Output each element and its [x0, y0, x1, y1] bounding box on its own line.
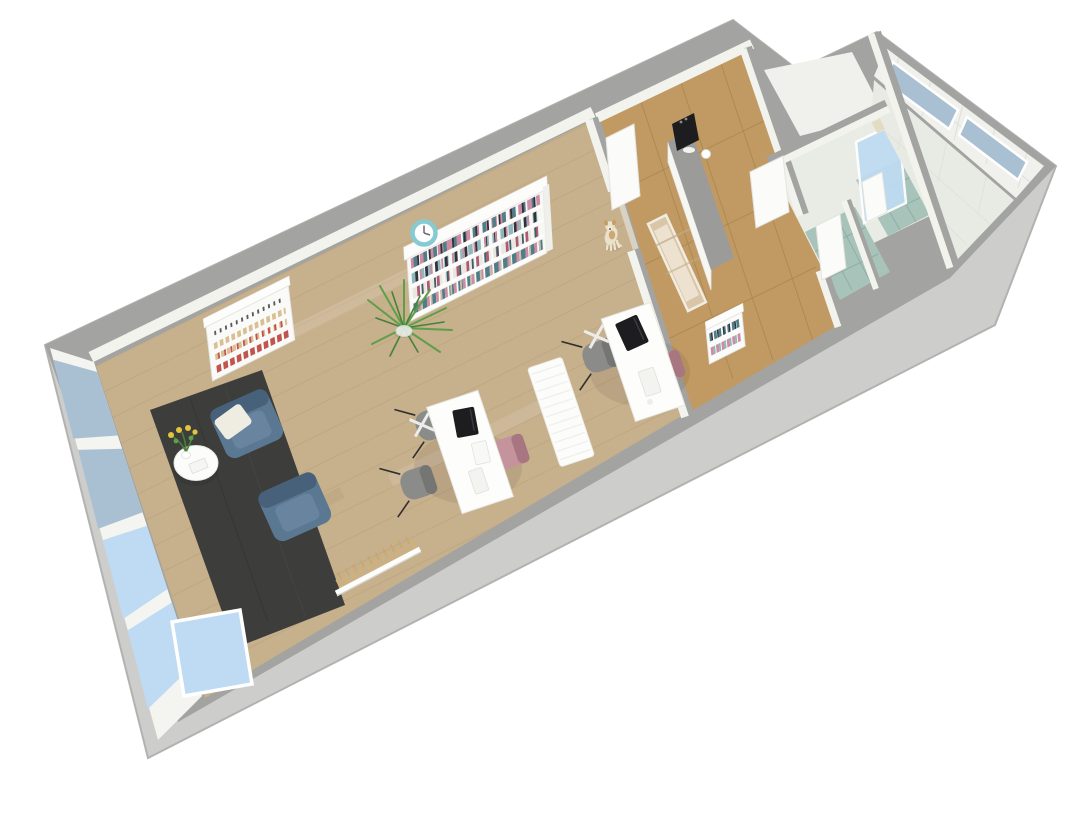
door-panel-wc1 [816, 214, 846, 280]
machine-tray [683, 147, 695, 153]
wall-clock [413, 222, 436, 245]
floorplan-svg [0, 0, 1089, 831]
plant-pot [396, 326, 412, 337]
machine-button [680, 121, 683, 124]
coffee-cup [702, 150, 711, 159]
door-panel-studio [606, 124, 640, 210]
open-glass-entry-door [172, 610, 252, 696]
floorplan-3d-view [0, 0, 1089, 831]
machine-button-2 [685, 118, 688, 121]
